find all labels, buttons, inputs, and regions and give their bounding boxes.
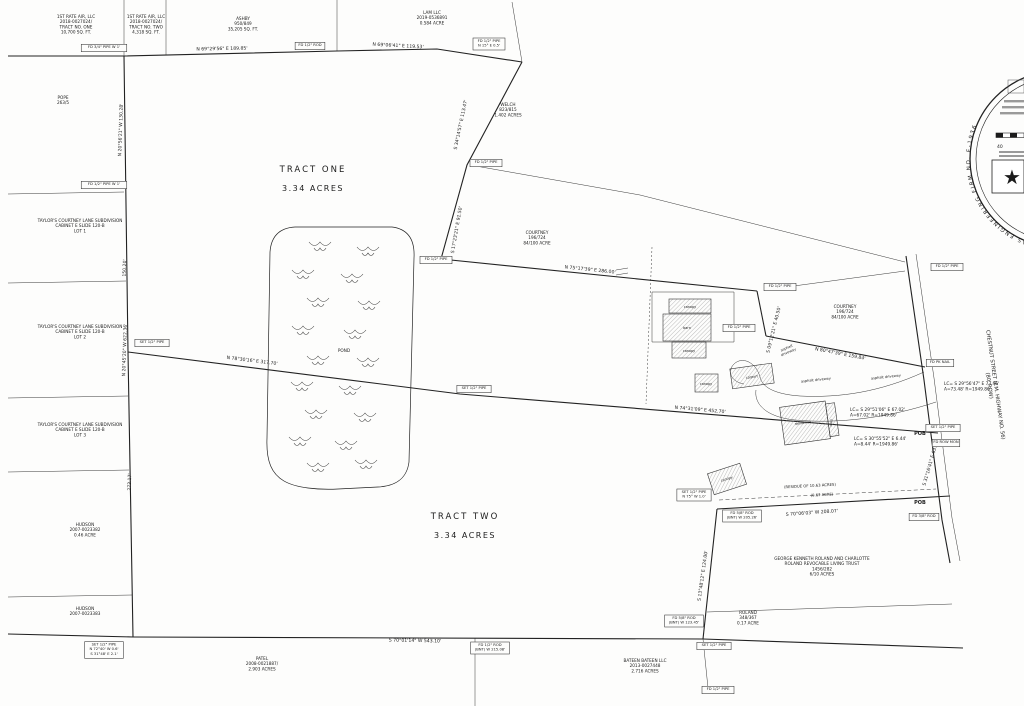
curve-label: LC= S 30°55'52" E 6.44'A=8.44' R=1949.86…	[854, 436, 906, 448]
monument-label: FD 1/2" PIPE W 1'	[88, 182, 120, 186]
monument-label: FD 1/2" PIPE	[728, 325, 751, 329]
monument-label: SET 1/2" PIPE	[702, 643, 727, 647]
monument-label: FD 1/2" PIPE	[936, 264, 959, 268]
bearing-label: S 70°06'03" W 208.07'	[786, 508, 839, 518]
parcel-label: TAYLOR'S COURTNEY LANE SUBDIVISIONCABINE…	[37, 218, 123, 233]
building-label-barn: barn	[683, 326, 691, 330]
bearing-label: N 69°06'41" E 119.53'	[372, 42, 424, 51]
residue-label: (RESIDUE OF 10.63 ACRES)	[784, 482, 837, 490]
residue-acreage-label: (0.67 ACRE)	[810, 491, 834, 497]
monument-label: SET 1/2" PIPEN 72°40' W 0.6'S 31°48' E 2…	[89, 643, 118, 656]
building-label-canopy: canopy	[684, 305, 696, 309]
parcel-label: BATEEN BATEEN LLC2013-00274482.716 ACRES	[623, 658, 666, 673]
monument-label: FD 1/2" ROD	[298, 43, 321, 47]
pob-label: POB	[914, 500, 926, 506]
parcel-label: 1ST RATE AIR, LLC2018-0027024/TRACT NO. …	[57, 14, 95, 35]
pond	[267, 227, 414, 489]
pob-label: POB	[914, 431, 926, 437]
parcel-label: PATEL2008-0021887/2.903 ACRES	[246, 656, 279, 671]
parcel-label: COURTNEY196/72484/100 ACRE	[523, 230, 551, 245]
parcel-label: 1ST RATE AIR, LLC2018-0027024/TRACT NO. …	[127, 14, 165, 35]
bearing-label: S 17°23'21" E 91.50'	[450, 206, 464, 254]
survey-plat-page: 40 ★ TEXAS ENGINEERING FIRM NO. F-1936 1…	[0, 0, 1024, 706]
parcel-label: HUDSON2007-00233820.46 ACRE	[70, 522, 101, 537]
adjoiner-lines	[8, 0, 952, 706]
driveway-label: asphalt driveway	[801, 376, 831, 383]
pond-label: POND	[338, 348, 350, 353]
monument-label: FD 1/2" PIPEN 15° E 0.5'	[478, 39, 501, 48]
building-label-canopy: canopy	[700, 382, 712, 386]
parcel-label: COURTNEY196/72484/100 ACRE	[831, 304, 859, 319]
seal-scale-bar	[996, 133, 1024, 138]
monument-label: FD PK NAIL	[930, 360, 951, 364]
parcel-label: GEORGE KENNETH ROLAND AND CHARLOTTEROLAN…	[774, 556, 870, 577]
curve-label: LC= S 29°51'06" E 67.02'A=67.02' R=1949.…	[850, 407, 905, 419]
monument-label: SET 1/2" PIPE	[462, 386, 487, 390]
bearing-label: S 09°12'21" E 40.50'	[765, 306, 782, 354]
parcel-label: ROLAND348/3670.17 ACRE	[737, 610, 759, 625]
building-label-canopy: canopy	[683, 349, 695, 353]
parcel-label: HUDSON2007-0023383	[70, 606, 101, 616]
surveyor-seal: 40 ★ TEXAS ENGINEERING FIRM NO. F-1936	[966, 71, 1024, 250]
driveway-label: asphalt driveway	[871, 373, 901, 380]
parcel-label: TAYLOR'S COURTNEY LANE SUBDIVISIONCABINE…	[37, 422, 123, 437]
monument-label: FD 5/8" ROD(BNT) W 123.45'	[669, 616, 699, 625]
labels-layer: 1ST RATE AIR, LLC2018-0027024/TRACT NO. …	[37, 10, 1006, 694]
parcel-label: WELCH823/8151.402 ACRES	[494, 102, 522, 117]
parcel-label: TAYLOR'S COURTNEY LANE SUBDIVISIONCABINE…	[37, 324, 123, 339]
driveway-label: asphaltdriveway	[779, 343, 797, 357]
monument-label: SET 1/2" PIPE	[931, 425, 956, 429]
parcel-label: ASHBY950/84935,205 SQ. FT.	[228, 16, 258, 31]
bearing-label: N 69°29'56" E 189.85'	[196, 46, 247, 53]
monument-label: FD ROW MON	[933, 440, 958, 444]
bearing-label: 150.20'	[122, 259, 129, 277]
bearing-label: 273.17'	[127, 473, 134, 491]
parcel-label: POPE263/5	[57, 95, 69, 105]
tract-title: TRACT ONE	[279, 165, 347, 175]
bearing-label: S 70°01'14" W 543.10'	[389, 638, 441, 645]
plat-canvas: 40 ★ TEXAS ENGINEERING FIRM NO. F-1936 1…	[0, 0, 1024, 706]
bearing-label: S 34°14'57" E 113.47'	[453, 99, 469, 150]
driveway-curves	[616, 268, 936, 421]
parcel-label: LAM LLC2019-05368910.584 ACRE	[417, 10, 448, 25]
monument-label: FD 1/2" PIPE	[425, 257, 448, 261]
tract-acreage: 3.34 ACRES	[434, 531, 496, 540]
seal-scale-number: 40	[997, 144, 1003, 150]
bearing-label: N 20°56'21" W 130.28'	[117, 103, 125, 156]
texas-star-icon: ★	[1003, 165, 1021, 189]
monument-label: FD 1/2" PIPE	[475, 160, 498, 164]
monument-label: SET 1/2" PIPE	[140, 340, 165, 344]
monument-label: FD 5/8" ROD(BNT) W 205.26'	[727, 511, 757, 520]
tract-acreage: 3.34 ACRES	[282, 184, 344, 193]
monument-label: FD 3/4" PIPE W 1'	[88, 45, 120, 49]
monument-label: SET 1/2" PIPEN 75° W 1.0'	[682, 490, 707, 499]
tract-title: TRACT TWO	[430, 512, 500, 522]
monument-label: FD 1/2" PIPE	[769, 284, 792, 288]
monument-label: FD 3/8" ROD	[912, 514, 935, 518]
monument-label: FD 1/2" ROD(BNT) W 215.08'	[475, 643, 505, 652]
monument-label: FD 1/2" PIPE	[707, 687, 730, 691]
